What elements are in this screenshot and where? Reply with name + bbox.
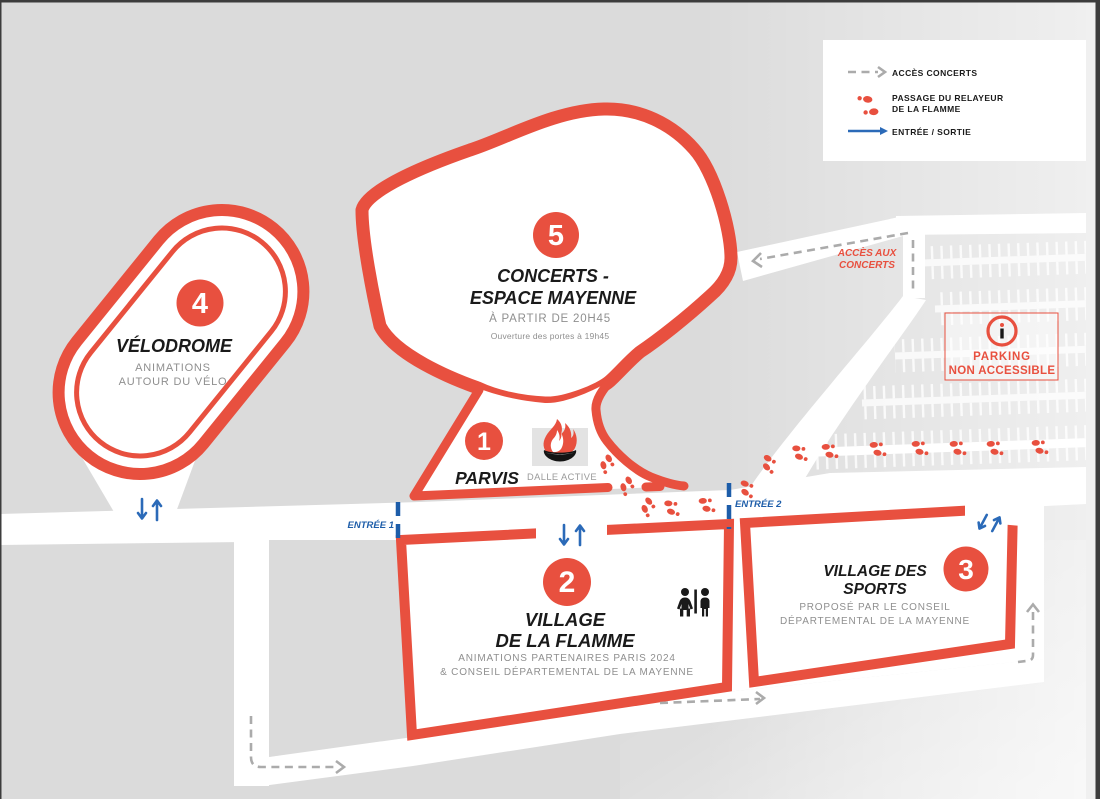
svg-text:1: 1 — [477, 428, 491, 456]
svg-text:3: 3 — [958, 554, 974, 585]
svg-text:5: 5 — [548, 220, 564, 252]
svg-text:ACCÈS AUX: ACCÈS AUX — [837, 246, 898, 259]
svg-text:2: 2 — [559, 566, 576, 599]
svg-text:PROPOSÉ PAR LE CONSEIL: PROPOSÉ PAR LE CONSEIL — [799, 600, 950, 613]
svg-text:SPORTS: SPORTS — [843, 581, 907, 598]
svg-text:ENTRÉE / SORTIE: ENTRÉE / SORTIE — [892, 127, 971, 137]
svg-text:ANIMATIONS: ANIMATIONS — [135, 362, 211, 374]
svg-text:VILLAGE: VILLAGE — [525, 609, 606, 630]
svg-text:CONCERTS -: CONCERTS - — [497, 266, 609, 286]
svg-text:VILLAGE DES: VILLAGE DES — [823, 563, 927, 580]
svg-text:NON ACCESSIBLE: NON ACCESSIBLE — [949, 365, 1056, 377]
svg-text:ESPACE MAYENNE: ESPACE MAYENNE — [470, 288, 637, 308]
svg-text:CONCERTS: CONCERTS — [839, 260, 895, 271]
svg-text:AUTOUR DU VÉLO: AUTOUR DU VÉLO — [119, 375, 228, 388]
svg-text:Ouverture des portes à 19h45: Ouverture des portes à 19h45 — [491, 331, 610, 341]
svg-text:DALLE ACTIVE: DALLE ACTIVE — [527, 472, 597, 482]
svg-text:& CONSEIL DÉPARTEMENTAL DE LA: & CONSEIL DÉPARTEMENTAL DE LA MAYENNE — [440, 665, 694, 678]
svg-text:DÉPARTEMENTAL DE LA MAYENNE: DÉPARTEMENTAL DE LA MAYENNE — [780, 614, 970, 627]
svg-text:4: 4 — [192, 288, 208, 320]
svg-text:À PARTIR DE 20H45: À PARTIR DE 20H45 — [489, 312, 611, 325]
svg-text:ENTRÉE 1: ENTRÉE 1 — [348, 520, 394, 531]
svg-text:ENTRÉE 2: ENTRÉE 2 — [735, 499, 782, 510]
svg-text:ANIMATIONS PARTENAIRES PARIS 2: ANIMATIONS PARTENAIRES PARIS 2024 — [458, 653, 675, 664]
svg-text:PARKING: PARKING — [973, 351, 1031, 363]
svg-text:DE LA FLAMME: DE LA FLAMME — [495, 630, 635, 651]
svg-text:PARVIS: PARVIS — [455, 468, 519, 488]
svg-text:PASSAGE DU RELAYEUR: PASSAGE DU RELAYEUR — [892, 93, 1004, 103]
svg-text:ACCÈS CONCERTS: ACCÈS CONCERTS — [892, 68, 977, 78]
svg-text:DE LA FLAMME: DE LA FLAMME — [892, 104, 961, 114]
svg-text:VÉLODROME: VÉLODROME — [116, 335, 233, 356]
